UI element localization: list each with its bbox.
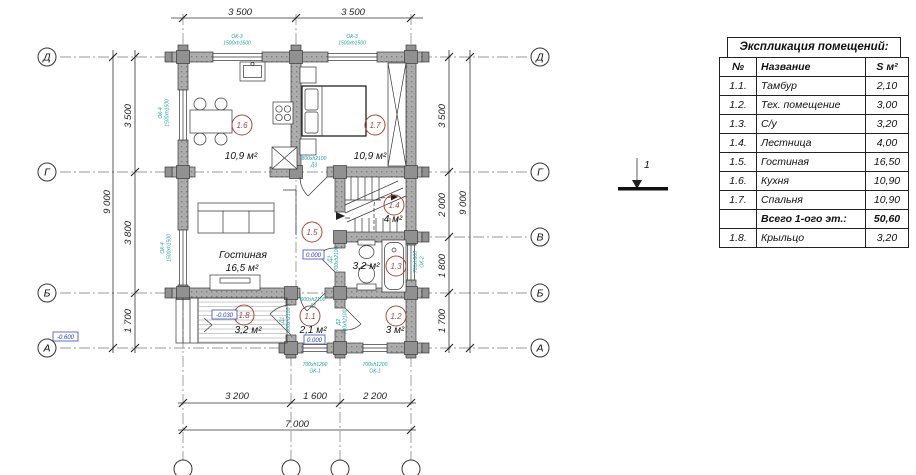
dim-left-overall: 9 000 (102, 189, 113, 213)
dim-top-2: 3 500 (341, 7, 365, 18)
section-label: 1 (644, 159, 650, 171)
window-mark-ok4-living: ОК-4 (160, 242, 166, 254)
row-area: 4,00 (866, 134, 909, 153)
room-tag-bedroom: 1.7 (369, 121, 381, 130)
axis-left-d: Д (42, 52, 51, 64)
room-tag-bath: 1.3 (390, 262, 402, 271)
room-area-living: 16,5 м² (226, 263, 259, 274)
window-ok3-bedroom (328, 54, 377, 61)
dim-bottom-seg-1: 3 200 (225, 391, 249, 402)
room-area-bedroom: 10,9 м² (354, 151, 387, 162)
room-area-stairs: 4 м² (384, 214, 403, 225)
row-name: Лестница (757, 134, 866, 153)
axis-bottom-circle-1 (174, 460, 192, 475)
window-size-ok3-bedroom: 1500xh1500 (338, 41, 366, 47)
row-area: 3,20 (866, 115, 909, 134)
schedule-row: 1.6. Кухня 10,90 (720, 172, 909, 191)
row-num: 1.2. (720, 96, 757, 115)
dim-bottom-seg-2: 1 600 (303, 391, 327, 402)
window-ok1-tambour (303, 345, 327, 352)
axis-right-d: Д (535, 52, 544, 64)
axis-right-a: А (535, 343, 543, 355)
door-mark-d1-entrance: Д1 (280, 317, 286, 325)
section-mark: 1 (618, 158, 668, 191)
room-area-tambour: 2,1 м² (299, 325, 328, 336)
total-value: 50,60 (866, 210, 909, 229)
floor-plan-sheet: { "schedule": { "title": "Экспликация по… (0, 0, 916, 475)
room-schedule: Экспликация помещений: № Название S м² 1… (719, 37, 909, 248)
dim-right-seg-1: 3 500 (437, 103, 448, 127)
row-area: 2,10 (866, 77, 909, 96)
axis-left-a: А (42, 343, 50, 355)
row-num: 1.6. (720, 172, 757, 191)
axis-left-b: Б (44, 288, 51, 300)
dim-left-seg-3: 1 700 (123, 308, 134, 332)
schedule-title: Экспликация помещений: (727, 37, 901, 58)
window-size-ok4-living: 1500xh1500 (167, 234, 173, 262)
axis-right-v: В (536, 232, 543, 244)
schedule-extra-row: 1.8. Крыльцо 3,20 (720, 229, 909, 248)
window-size-ok1-tambour: 700xh1200 (303, 362, 328, 368)
window-ok4-living (180, 230, 187, 285)
window-ok3-kitchen (213, 54, 262, 61)
dim-bottom-seg-3: 2 200 (362, 391, 387, 402)
window-mark-ok4-kitchen: ОК-4 (158, 107, 164, 119)
schedule-col-name: Название (757, 58, 866, 77)
porch (176, 298, 287, 343)
row-area: 10,90 (866, 191, 909, 210)
window-size-ok2-bath: 700xh900 (413, 251, 419, 273)
kitchen-vent-shaft (272, 147, 297, 169)
room-tag-tambour: 1.1 (304, 312, 315, 321)
window-ok1-tech (363, 345, 387, 352)
axis-bottom-circle-2 (282, 460, 300, 475)
total-num-empty (720, 210, 757, 229)
door-size-d1-entrance: 900xh2100 (286, 307, 292, 332)
room-tag-porch: 1.8 (238, 311, 250, 320)
schedule-table: № Название S м² 1.1. Тамбур 2,10 1.2. Те… (719, 57, 909, 248)
dim-left-seg-1: 3 500 (123, 103, 134, 127)
dim-top-1: 3 500 (228, 7, 252, 18)
row-num: 1.4. (720, 134, 757, 153)
level-ground: -0.600 (57, 335, 75, 341)
window-mark-ok1-tambour: ОК-1 (309, 369, 321, 375)
dim-left-seg-2: 3 800 (123, 220, 134, 244)
row-name: Кухня (757, 172, 866, 191)
level-tambour: 0.000 (307, 338, 323, 344)
room-area-tech: 3 м² (386, 325, 405, 336)
room-name-living: Гостиная (219, 249, 267, 261)
room-tag-kitchen: 1.6 (236, 121, 248, 130)
window-mark-ok1-tech: ОК-1 (369, 369, 381, 375)
row-num: 1.1. (720, 77, 757, 96)
row-name: Крыльцо (757, 229, 866, 248)
schedule-row: 1.7. Спальня 10,90 (720, 191, 909, 210)
dimensions-top: 3 500 3 500 (171, 7, 423, 22)
schedule-row: 1.2. Тех. помещение 3,00 (720, 96, 909, 115)
window-size-ok1-tech: 700xh1200 (363, 362, 388, 368)
row-num: 1.8. (720, 229, 757, 248)
row-area: 3,20 (866, 229, 909, 248)
row-num: 1.3. (720, 115, 757, 134)
axis-bottom-circle-4 (402, 460, 420, 475)
row-area: 10,90 (866, 172, 909, 191)
window-ok4-kitchen (180, 90, 187, 140)
dimensions-left: 3 500 3 800 1 700 9 000 (102, 50, 139, 353)
door-mark-d3: Д3 (310, 163, 318, 169)
dim-right-overall: 9 000 (458, 190, 469, 214)
schedule-row: 1.1. Тамбур 2,10 (720, 77, 909, 96)
door-size-d2-bath: 700xh2100 (334, 246, 340, 271)
level-living: 0.000 (306, 253, 322, 259)
schedule-header-row: № Название S м² (720, 58, 909, 77)
row-name: Тамбур (757, 77, 866, 96)
door-mark-d2-tech: Д2 (336, 319, 342, 327)
door-size-d1-top: 900xh2100 (301, 297, 326, 303)
room-area-kitchen: 10,9 м² (225, 151, 258, 162)
dim-right-seg-3: 1 800 (437, 253, 448, 277)
dimensions-bottom: 3 200 1 600 2 200 7 000 (178, 391, 416, 434)
room-tag-living: 1.5 (306, 228, 318, 237)
dim-right-seg-2: 2 000 (437, 192, 448, 217)
schedule-col-num: № (720, 58, 757, 77)
schedule-row: 1.4. Лестница 4,00 (720, 134, 909, 153)
schedule-col-area: S м² (866, 58, 909, 77)
schedule-total-row: Всего 1-ого эт.: 50,60 (720, 210, 909, 229)
dim-bottom-overall: 7 000 (285, 419, 309, 430)
schedule-row: 1.3. С/у 3,20 (720, 115, 909, 134)
window-mark-ok3-bedroom: ОК-3 (346, 34, 358, 40)
window-mark-ok2-bath: ОК-2 (420, 256, 426, 268)
row-name: Спальня (757, 191, 866, 210)
axis-bottom-circle-3 (331, 460, 349, 475)
room-area-porch: 3,2 м² (235, 325, 263, 336)
total-label: Всего 1-ого эт.: (757, 210, 866, 229)
door-mark-d2-bath: Д2 (328, 256, 334, 264)
window-size-ok3-kitchen: 1500xh1500 (223, 41, 251, 47)
axis-right-b: Б (537, 288, 544, 300)
dim-right-seg-4: 1 700 (437, 308, 448, 332)
room-tag-tech: 1.2 (390, 312, 402, 321)
bedroom-wardrobe (388, 63, 406, 166)
level-porch: -0.030 (216, 313, 234, 319)
row-area: 3,00 (866, 96, 909, 115)
door-d3-bedroom (300, 177, 327, 196)
dimensions-right: 3 500 2 000 1 800 1 700 9 000 (437, 50, 474, 353)
row-num: 1.7. (720, 191, 757, 210)
row-name: С/у (757, 115, 866, 134)
window-mark-ok3-kitchen: ОК-3 (231, 34, 243, 40)
room-area-bath: 3,2 м² (353, 261, 381, 272)
row-num: 1.5. (720, 153, 757, 172)
schedule-row: 1.5. Гостиная 16,50 (720, 153, 909, 172)
window-size-ok4-kitchen: 1500xh1500 (165, 99, 171, 127)
row-name: Гостиная (757, 153, 866, 172)
furniture-living (198, 190, 296, 290)
room-tag-stairs: 1.4 (388, 201, 400, 210)
row-name: Тех. помещение (757, 96, 866, 115)
door-mark-d1-top: Д1 (309, 304, 317, 310)
row-area: 16,50 (866, 153, 909, 172)
door-size-d2-tech: 700xh2100 (343, 309, 349, 334)
door-size-d3: 800xh2100 (302, 156, 327, 162)
